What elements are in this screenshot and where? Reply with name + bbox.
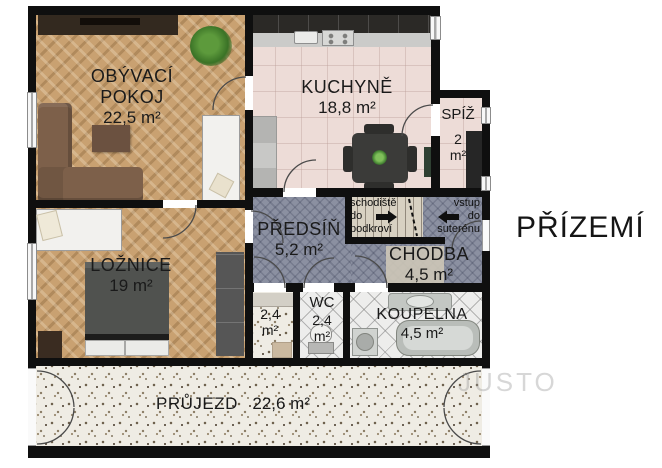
plant-icon	[190, 26, 232, 66]
bedroom-side-table	[38, 331, 62, 358]
passage-gate-left	[28, 368, 36, 446]
hall-name: PŘEDSÍŇ	[257, 219, 341, 240]
sofa-horizontal	[38, 167, 143, 203]
wall-kitchen-hall	[245, 188, 490, 197]
kitchen-window	[430, 16, 441, 40]
table-centerpiece-icon	[372, 150, 387, 165]
bathroom-name: KOUPELNA	[376, 306, 467, 325]
pantry-window-upper	[481, 107, 491, 124]
room-label-storage: 2,4 m²	[260, 306, 279, 338]
stairs-note: schodiště do podkroví	[350, 197, 410, 236]
stairs-note-line1: schodiště	[350, 197, 410, 210]
entry-note: vstup do suterénu	[424, 197, 480, 236]
wall-outer-bottom	[28, 446, 490, 458]
room-label-hall: PŘEDSÍŇ 5,2 m²	[257, 219, 341, 260]
wall-center-vertical	[245, 6, 253, 366]
storage-item	[272, 342, 292, 358]
door-gap-living-bedroom	[163, 200, 197, 208]
wall-living-bedroom	[28, 200, 253, 208]
passage-area: 22,6 m²	[252, 394, 310, 413]
living-area: 22,5 m²	[91, 108, 173, 128]
stairs-note-line2: do	[350, 210, 410, 223]
dining-chair-top	[364, 124, 394, 134]
double-bed-pillows	[85, 340, 169, 356]
storage-area-unit: m²	[260, 322, 279, 338]
wall-outer-top	[28, 6, 440, 15]
pantry-area-value: 2	[441, 131, 474, 147]
door-gap-hall-storage	[254, 283, 286, 292]
dining-chair-left	[343, 146, 353, 172]
hall-area: 5,2 m²	[257, 240, 341, 260]
bedroom-name: LOŽNICE	[90, 255, 172, 276]
entry-note-line3: suterénu	[424, 223, 480, 236]
door-gap-kitchen-pantry	[431, 104, 440, 136]
room-label-wc: WC 2,4 m²	[310, 294, 335, 344]
room-label-pantry: SPÍŽ 2 m²	[441, 106, 474, 163]
storage-area-value: 2,4	[260, 306, 279, 322]
coffee-table	[92, 125, 130, 152]
pantry-name: SPÍŽ	[441, 106, 474, 124]
pantry-window-lower	[481, 176, 491, 191]
room-label-bedroom: LOŽNICE 19 m²	[90, 255, 172, 296]
wall-rooms-passage	[28, 358, 490, 366]
room-label-living: OBÝVACÍ POKOJ 22,5 m²	[91, 66, 173, 129]
wall-wc-bathroom	[343, 292, 350, 358]
corridor-name: CHODBA	[389, 244, 469, 265]
kitchen-area: 18,8 m²	[301, 98, 393, 118]
door-gap-hall-wc	[303, 283, 334, 292]
wc-area-unit: m²	[310, 328, 335, 344]
kitchen-stove	[322, 30, 354, 46]
door-gap-living-kitchen	[245, 76, 253, 110]
stairs-note-line3: podkroví	[350, 223, 410, 236]
wall-storage-wc	[293, 292, 300, 358]
door-gap-kitchen-hall	[283, 188, 316, 197]
living-name-line2: POKOJ	[91, 87, 173, 108]
entry-note-line1: vstup	[424, 197, 480, 210]
dining-chair-right	[407, 146, 417, 172]
tv-screen	[80, 18, 140, 25]
kitchen-name: KUCHYNĚ	[301, 77, 393, 98]
room-label-passage: PRŮJEZD 22,6 m²	[156, 394, 310, 415]
entrance-door-gap	[482, 220, 490, 251]
floor-plan-canvas: OBÝVACÍ POKOJ 22,5 m² KUCHYNĚ 18,8 m² SP…	[0, 0, 662, 468]
wc-name: WC	[310, 294, 335, 312]
bedroom-window	[27, 243, 37, 300]
bathroom-area: 4,5 m²	[376, 325, 467, 343]
passage-name: PRŮJEZD	[156, 394, 238, 413]
room-label-corridor: CHODBA 4,5 m²	[389, 244, 469, 285]
corridor-area: 4,5 m²	[389, 265, 469, 285]
wc-area-value: 2,4	[310, 312, 335, 328]
room-label-bathroom: KOUPELNA 4,5 m²	[376, 306, 467, 343]
door-gap-corridor-bathroom	[355, 283, 388, 292]
watermark: JUSTO	[458, 367, 558, 398]
entry-note-line2: do	[424, 210, 480, 223]
room-label-kitchen: KUCHYNĚ 18,8 m²	[301, 77, 393, 118]
living-name-line1: OBÝVACÍ	[91, 66, 173, 87]
bedroom-area: 19 m²	[90, 276, 172, 296]
wall-staircase-bottom	[345, 237, 445, 244]
living-window	[27, 92, 37, 148]
wardrobe	[216, 252, 244, 356]
pantry-area-unit: m²	[441, 147, 474, 163]
kitchen-sink	[294, 31, 318, 44]
kitchen-fridge-unit	[249, 116, 277, 194]
washing-machine-drum	[356, 333, 374, 351]
storage-shelf	[250, 293, 293, 307]
door-gap-hall-bedroom	[245, 210, 253, 243]
floor-title: PŘÍZEMÍ	[516, 211, 645, 245]
